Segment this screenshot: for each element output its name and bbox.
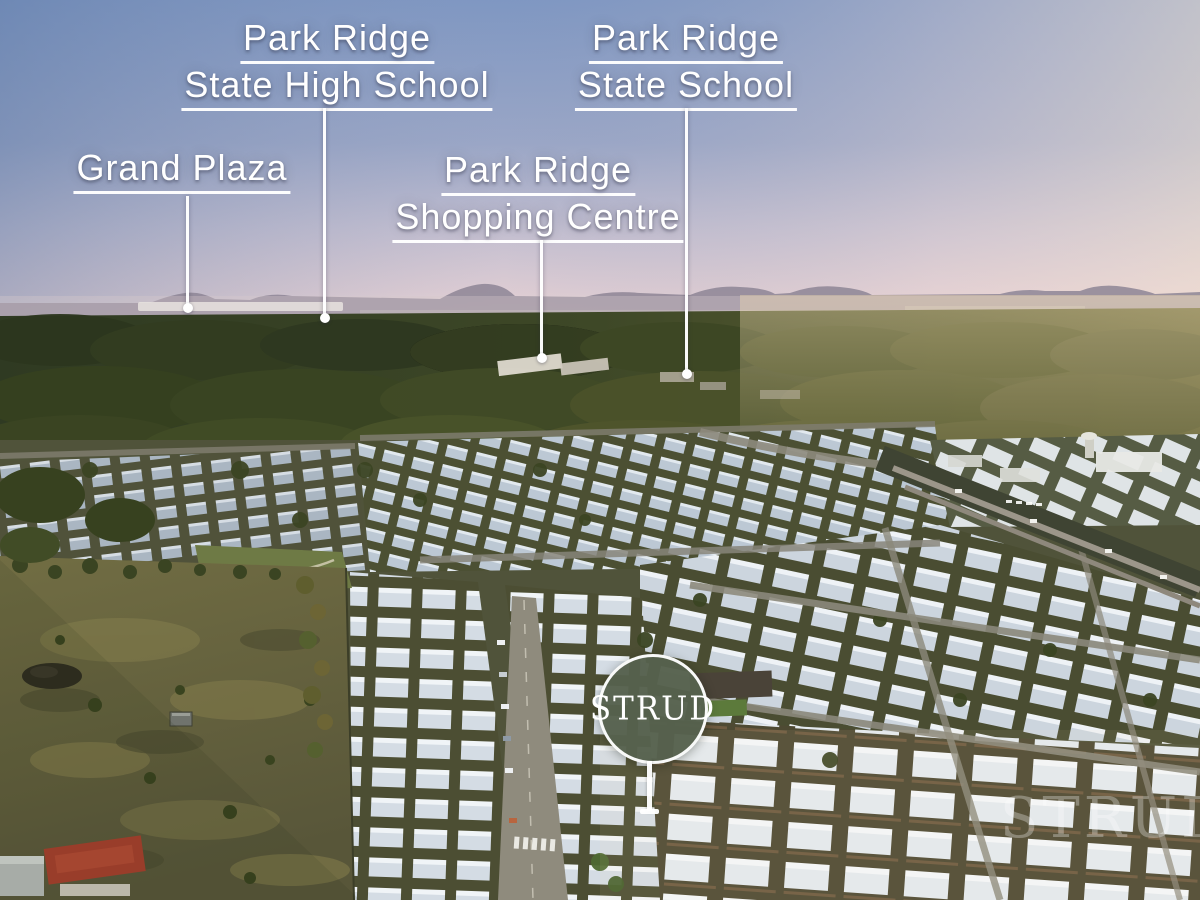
leader-line-state-school (685, 108, 688, 372)
leader-line-high-school (323, 108, 326, 316)
label-line: Park Ridge (589, 20, 783, 64)
leader-line-shopping-centre (540, 240, 543, 356)
label-line: Park Ridge (441, 152, 635, 196)
label-line: State High School (181, 67, 492, 111)
label-grand-plaza: Grand Plaza (73, 150, 290, 194)
label-line: Park Ridge (240, 20, 434, 64)
leader-line-grand-plaza (186, 196, 189, 306)
leader-dot-grand-plaza (183, 303, 193, 313)
aerial-photo-background (0, 0, 1200, 900)
label-line: State School (575, 67, 797, 111)
label-line: Shopping Centre (392, 199, 683, 243)
label-park-ridge-state-high-school: Park Ridge State High School (181, 20, 492, 111)
label-park-ridge-state-school: Park Ridge State School (575, 20, 797, 111)
leader-dot-state-school (682, 369, 692, 379)
aerial-photo: Park Ridge State High School Park Ridge … (0, 0, 1200, 900)
leader-dot-high-school (320, 313, 330, 323)
leader-dot-shopping-centre (537, 353, 547, 363)
strud-logo-text: STRUD (590, 690, 716, 728)
logo-pin-line (647, 761, 652, 811)
logo-pin-foot (640, 809, 659, 814)
strud-watermark: STRUD (1000, 786, 1200, 851)
label-line: Grand Plaza (73, 150, 290, 194)
strud-logo-badge: STRUD (598, 654, 708, 764)
label-park-ridge-shopping-centre: Park Ridge Shopping Centre (392, 152, 683, 243)
